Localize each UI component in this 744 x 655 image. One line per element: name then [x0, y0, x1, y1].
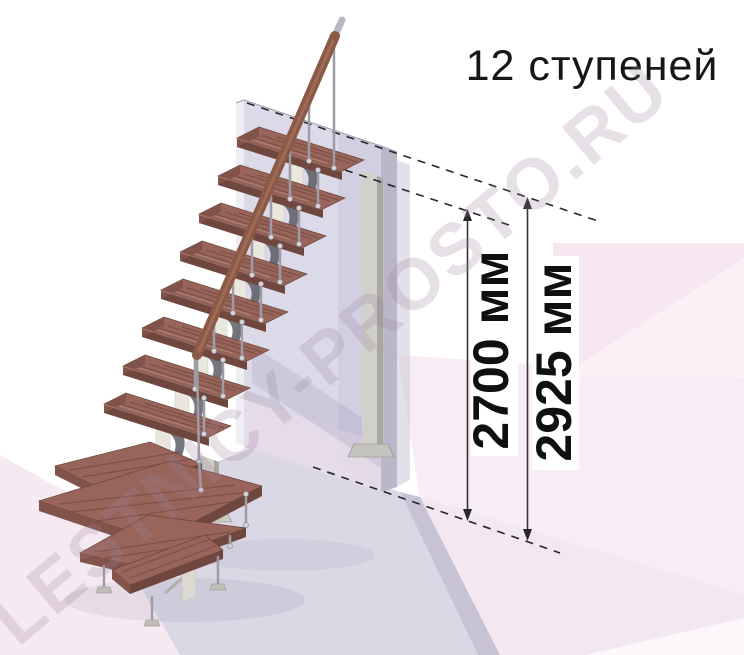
staircase-dimension-diagram: 2700 мм 2925 мм 12 ступеней LESTNICY-PRO…	[0, 0, 744, 655]
step-foot	[144, 620, 160, 626]
diagram-canvas: 2700 мм 2925 мм 12 ступеней LESTNICY-PRO…	[0, 0, 744, 655]
step-foot	[210, 584, 226, 590]
dimension-label-2925: 2925 мм	[526, 262, 582, 461]
